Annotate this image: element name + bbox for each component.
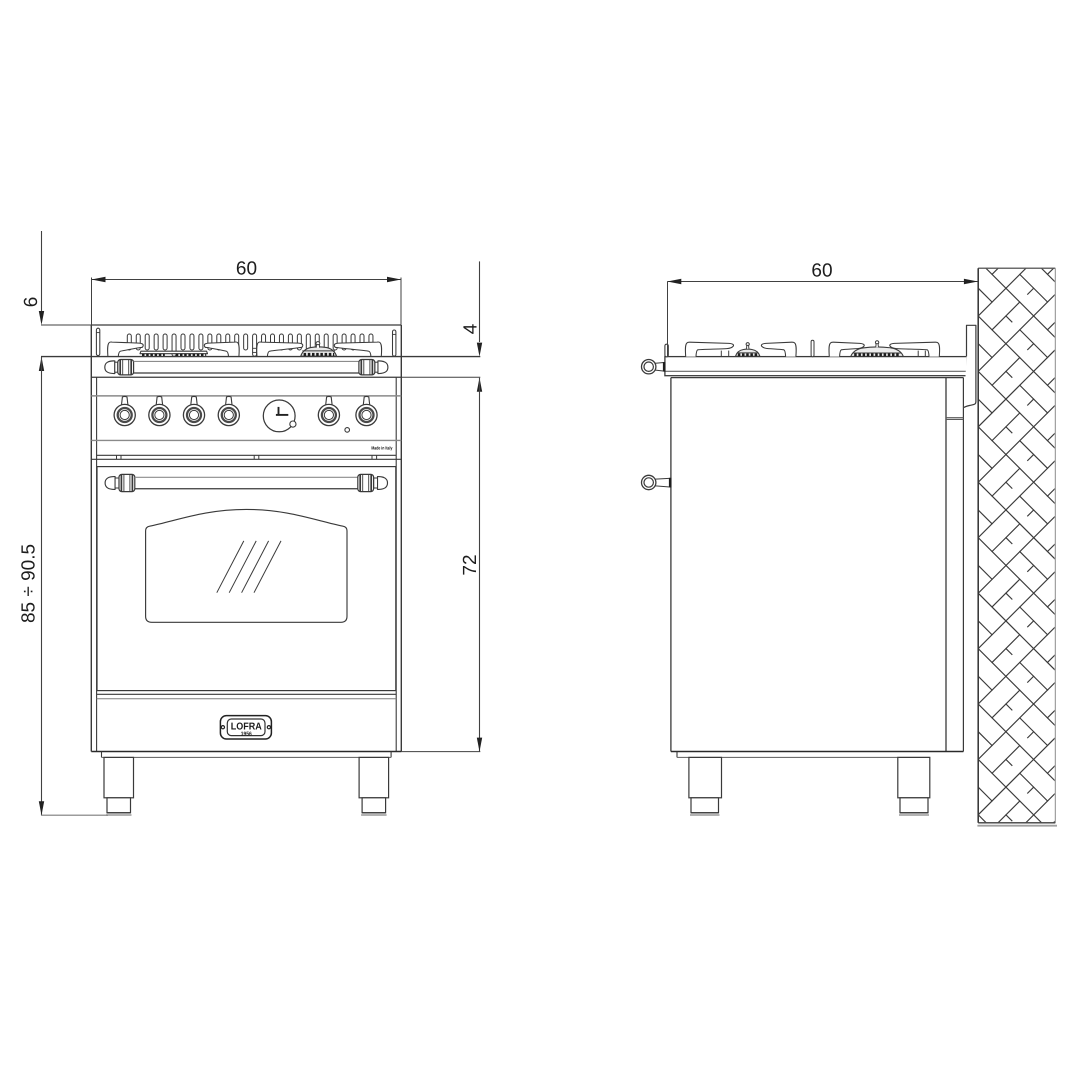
svg-text:60: 60	[236, 258, 257, 279]
svg-text:85 ÷ 90.5: 85 ÷ 90.5	[19, 544, 40, 623]
svg-text:1956: 1956	[241, 731, 252, 737]
svg-text:4: 4	[460, 323, 481, 334]
svg-text:Made in Italy: Made in Italy	[371, 446, 392, 451]
svg-text:6: 6	[21, 297, 42, 308]
svg-text:72: 72	[460, 554, 481, 575]
svg-text:60: 60	[811, 261, 832, 282]
